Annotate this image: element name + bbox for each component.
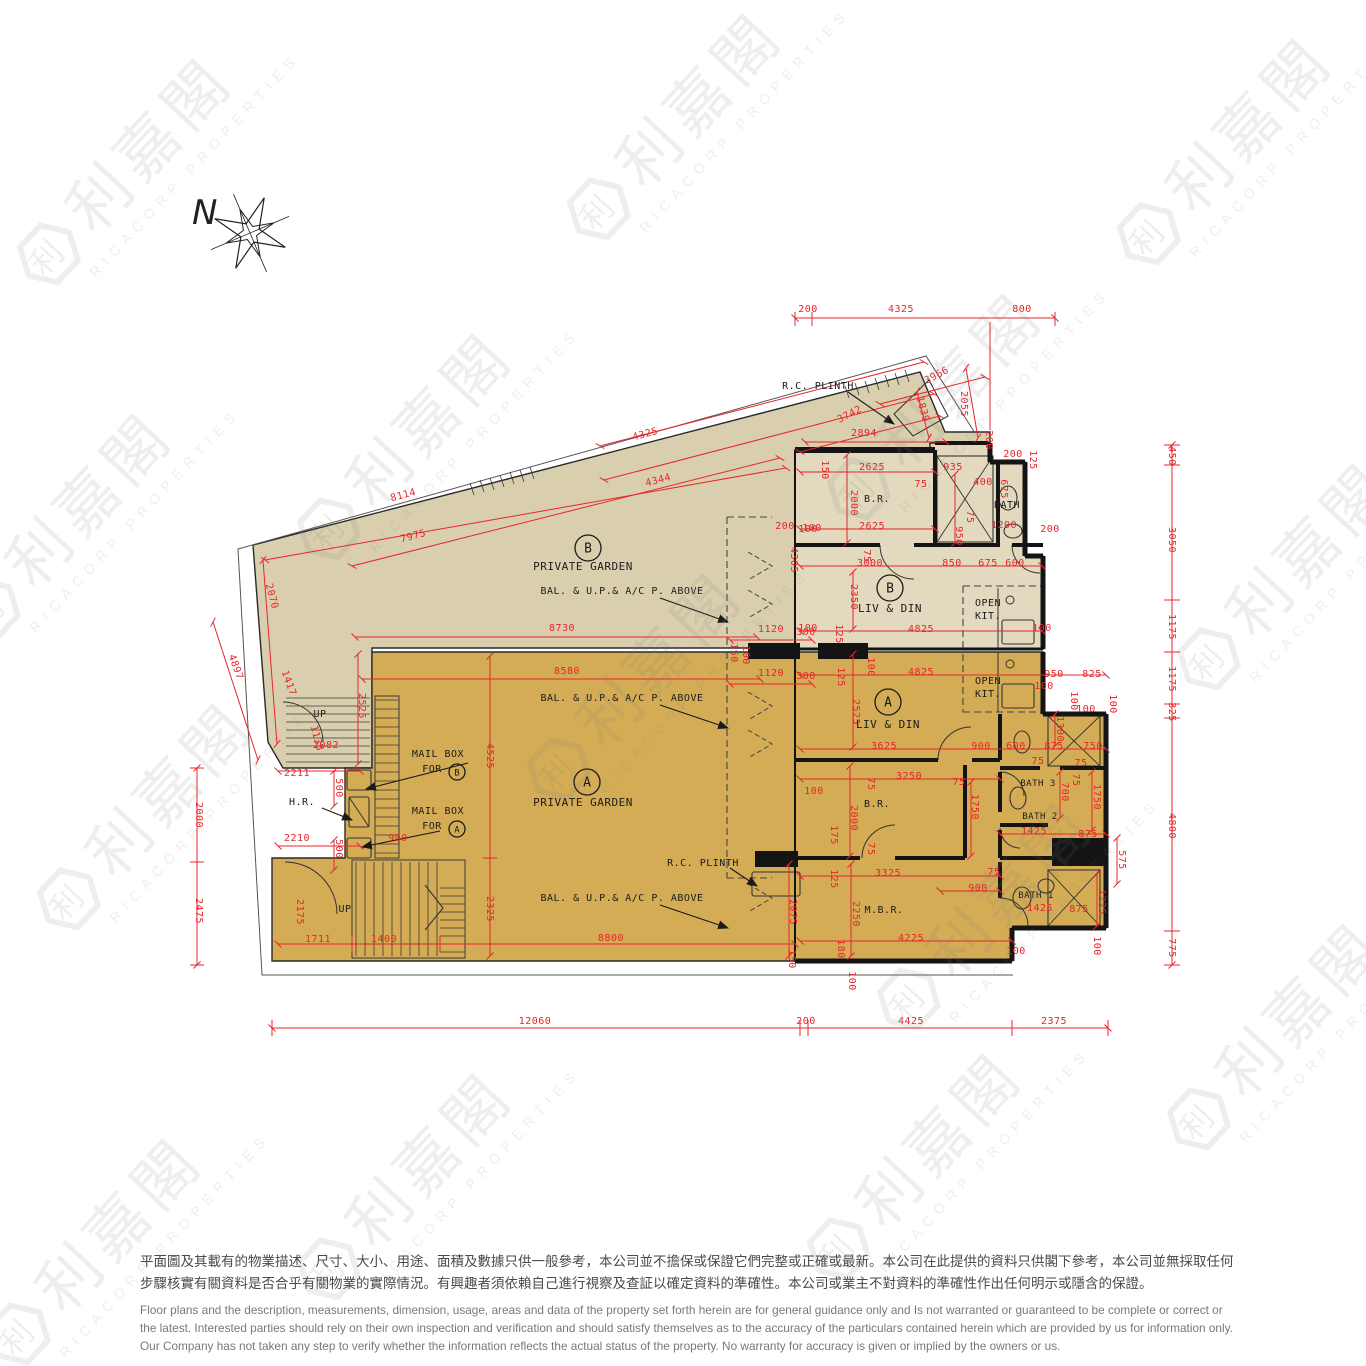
dimension-label: 2175: [294, 899, 305, 925]
unit-marker-label: B: [454, 769, 459, 779]
room-label: OPEN: [975, 598, 1001, 609]
dimension-label: 950: [953, 526, 964, 546]
dimension-label: 2625: [859, 462, 885, 473]
room-label: FOR: [422, 764, 442, 775]
dimension-label: 100: [865, 657, 876, 677]
dimension-label: 200: [796, 1016, 816, 1027]
dimension-label: 935: [943, 462, 963, 473]
dimension-label: 1425: [1027, 903, 1053, 914]
unit-marker-label: B: [886, 582, 894, 597]
dimension-label: 75: [1074, 758, 1087, 769]
dimension-label: 100: [1032, 623, 1052, 634]
dimension-label: 2210: [284, 833, 310, 844]
dimension-label: 75: [987, 867, 1000, 878]
dimension-label: 300: [796, 671, 816, 682]
dimension-label: 2625: [859, 521, 885, 532]
room-label: UP: [338, 904, 351, 915]
room-label: OPEN: [975, 676, 1001, 687]
dimension-label: 2000: [848, 490, 859, 516]
dimension-label: 4425: [898, 1016, 924, 1027]
dimension-label: 1400: [371, 934, 397, 945]
dimension-label: 8730: [549, 623, 575, 634]
dimension-label: 2525: [356, 693, 367, 719]
dim-tick: [256, 756, 261, 765]
dimension-label: 3966: [923, 365, 951, 387]
dimension-label: 125: [835, 667, 846, 687]
room-label: FOR: [422, 821, 442, 832]
dimension-label: 1120: [758, 668, 784, 679]
dimension-label: 1175: [1166, 614, 1177, 640]
room-label: MAIL BOX: [412, 806, 464, 817]
dim-tick: [211, 618, 216, 627]
dimension-label: 8580: [554, 666, 580, 677]
wall-block: [755, 851, 798, 867]
dimension-label: 4897: [226, 653, 245, 681]
dimension-label: 125: [1027, 450, 1038, 470]
room-label: BAL. & U.P.& A/C P. ABOVE: [540, 586, 703, 597]
dimension-label: 8114: [389, 487, 417, 504]
dimension-label: 1750: [1091, 784, 1102, 810]
dimension-label: 2894: [851, 428, 877, 439]
unit-marker-label: A: [884, 696, 892, 711]
dimension-label: 1225: [1096, 889, 1107, 915]
disclaimer-english: Floor plans and the description, measure…: [140, 1302, 1238, 1355]
dimension-label: 600: [1005, 558, 1025, 569]
room-label: BAL. & U.P.& A/C P. ABOVE: [540, 893, 703, 904]
disclaimer: 平面圖及其載有的物業描述、尺寸、大小、用途、面積及數據只供一般參考，本公司並不擔…: [140, 1252, 1238, 1355]
dimension-label: 100: [1034, 681, 1054, 692]
dimension-label: 12060: [519, 1016, 552, 1027]
dimension-label: 4525: [484, 743, 495, 769]
dimension-label: 1300: [1054, 716, 1065, 742]
wall-block: [1052, 838, 1106, 866]
dimension-label: 75: [865, 842, 876, 855]
dimension-label: 3625: [871, 741, 897, 752]
dimension-label: 775: [1166, 938, 1177, 958]
dimension-label: 675: [998, 479, 1009, 499]
dimension-label: 825: [1082, 669, 1102, 680]
dimension-label: 500: [333, 839, 344, 859]
room-label: LIV & DIN: [856, 718, 920, 731]
dimension-label: 75: [952, 777, 965, 788]
dimension-label: 1425: [1021, 826, 1047, 837]
room-label: B.R.: [864, 799, 890, 810]
room-label: BATH 1: [1018, 891, 1054, 901]
dimension-label: 180: [835, 939, 846, 959]
unit-a: [795, 652, 1106, 961]
dimension-label: 200: [1003, 449, 1023, 460]
dimension-label: 100: [804, 786, 824, 797]
room-label: BATH: [994, 500, 1020, 511]
dimension-label: 575: [1116, 850, 1127, 870]
room-label: UP: [313, 709, 326, 720]
dimension-line: [213, 622, 258, 760]
dimension-label: 4800: [1166, 813, 1177, 839]
dimension-label: 200: [775, 521, 795, 532]
dimension-label: 2075: [787, 899, 798, 925]
dimension-label: 1750: [969, 794, 980, 820]
dimension-label: 850: [942, 558, 962, 569]
dimension-label: 2211: [284, 768, 310, 779]
dimension-label: 100: [846, 971, 857, 991]
dimension-label: 4225: [898, 933, 924, 944]
dimension-label: 2375: [1041, 1016, 1067, 1027]
room-label: PRIVATE GARDEN: [533, 796, 633, 809]
dim-tick: [981, 374, 990, 379]
dimension-label: 3000: [857, 558, 883, 569]
dimension-label: 700: [1059, 782, 1070, 802]
floor-plan-page: BBAABA2004325800396637421839289420552001…: [0, 0, 1366, 1366]
dimension-label: 150: [786, 949, 797, 969]
dimension-label: 75: [1031, 756, 1044, 767]
dimension-label: 500: [333, 778, 344, 798]
dimension-label: 100: [1107, 694, 1118, 714]
dimension-label: 100: [802, 523, 822, 534]
floor-plan-drawing: BBAABA2004325800396637421839289420552001…: [0, 0, 1366, 1366]
dimension-label: 4305: [788, 547, 799, 573]
dimension-label: 2000: [193, 802, 204, 828]
room-label: M.B.R.: [864, 905, 903, 916]
dimension-label: 150: [728, 643, 739, 663]
unit-marker-label: B: [584, 542, 592, 557]
room-label: MAIL BOX: [412, 749, 464, 760]
room-label: LIV & DIN: [858, 602, 922, 615]
dimension-label: 200: [983, 430, 994, 450]
dimension-label: 300: [796, 627, 816, 638]
dimension-label: 900: [968, 883, 988, 894]
dimension-label: 8800: [598, 933, 624, 944]
dimension-label: 2082: [313, 740, 339, 751]
dimension-label: 875: [1044, 741, 1064, 752]
wall-block: [748, 643, 800, 659]
dimension-label: 875: [1069, 904, 1089, 915]
dimension-label: 2475: [193, 898, 204, 924]
dimension-label: 3050: [1166, 527, 1177, 553]
dimension-label: 1711: [305, 934, 331, 945]
dimension-label: 2000: [848, 805, 859, 831]
dimension-label: 600: [1006, 741, 1026, 752]
dimension-label: 3325: [875, 868, 901, 879]
room-label: KIT.: [975, 611, 1001, 622]
dimension-label: 150: [819, 460, 830, 480]
dimension-label: 325: [1166, 702, 1177, 722]
dimension-label: 100: [1006, 946, 1026, 957]
dimension-label: 100: [740, 645, 751, 665]
room-label: H.R.: [289, 797, 315, 808]
room-label: BAL. & U.P.& A/C P. ABOVE: [540, 693, 703, 704]
dimension-label: 900: [971, 741, 991, 752]
dimension-label: 750: [1083, 741, 1103, 752]
unit-marker-label: A: [454, 826, 460, 836]
dimension-label: 75: [914, 479, 927, 490]
dimension-label: 900: [388, 833, 408, 844]
dimension-label: 2055: [958, 391, 969, 417]
dimension-label: 4825: [908, 624, 934, 635]
dimension-label: 1175: [1166, 666, 1177, 692]
wall-block: [818, 643, 868, 659]
dimension-label: 200: [1040, 524, 1060, 535]
dimension-label: 75: [1070, 773, 1081, 786]
dimension-label: 4325: [888, 304, 914, 315]
dimension-label: 175: [828, 825, 839, 845]
dim-tick: [930, 391, 939, 396]
dimension-label: 675: [978, 558, 998, 569]
dimension-label: 450: [1166, 446, 1177, 466]
dimension-label: 3250: [896, 771, 922, 782]
north-letter: N: [192, 193, 218, 233]
room-label: R.C. PLINTH: [667, 858, 739, 869]
dimension-label: 2250: [850, 901, 861, 927]
dim-tick: [920, 359, 929, 364]
dimension-label: 125: [828, 869, 839, 889]
dimension-label: 800: [1012, 304, 1032, 315]
dimension-label: 875: [1078, 829, 1098, 840]
dimension-label: 2325: [484, 896, 495, 922]
room-label: KIT.: [975, 689, 1001, 700]
dimension-label: 75: [865, 777, 876, 790]
dimension-label: 1120: [758, 624, 784, 635]
dimension-label: 75: [964, 510, 975, 523]
dimension-label: 1200: [991, 520, 1017, 531]
dimension-label: 100: [1076, 704, 1096, 715]
unit-marker-label: A: [583, 776, 591, 791]
dimension-label: 125: [833, 624, 844, 644]
room-label: R.C. PLINTH: [782, 381, 854, 392]
disclaimer-chinese: 平面圖及其載有的物業描述、尺寸、大小、用途、面積及數據只供一般參考，本公司並不擔…: [140, 1252, 1238, 1295]
dimension-label: 4825: [908, 667, 934, 678]
dimension-label: 200: [798, 304, 818, 315]
room-label: PRIVATE GARDEN: [533, 560, 633, 573]
dimension-label: 950: [1044, 669, 1064, 680]
dimension-label: 400: [973, 477, 993, 488]
room-label: BATH 2: [1022, 812, 1058, 822]
room-label: B.R.: [864, 494, 890, 505]
dimension-label: 100: [1091, 936, 1102, 956]
room-label: BATH 3: [1020, 779, 1056, 789]
